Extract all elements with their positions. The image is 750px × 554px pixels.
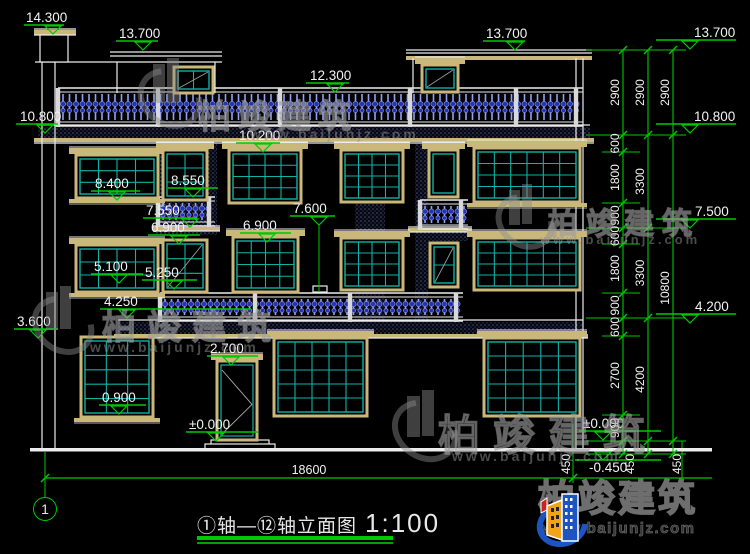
baluster-bulb bbox=[457, 101, 462, 106]
window-frame bbox=[484, 338, 580, 416]
baluster-bulb bbox=[221, 301, 226, 306]
baluster-stem bbox=[394, 94, 396, 120]
dim-value: 2900 bbox=[658, 79, 672, 106]
baluster bbox=[93, 94, 98, 120]
baluster bbox=[385, 94, 390, 120]
dim-chain: 2900330033004200 bbox=[633, 46, 652, 458]
baluster-stem bbox=[101, 94, 103, 120]
baluster-bulb bbox=[187, 213, 191, 217]
baluster bbox=[548, 94, 553, 120]
level-text: 13.700 bbox=[486, 26, 527, 41]
baluster-stem bbox=[264, 94, 266, 120]
baluster-bulb bbox=[463, 101, 468, 106]
dim-value: 1800 bbox=[608, 255, 622, 282]
baluster-bulb bbox=[138, 101, 143, 106]
baluster-bulb bbox=[169, 301, 174, 306]
baluster-bulb bbox=[470, 101, 475, 106]
baluster bbox=[292, 299, 297, 315]
baluster bbox=[266, 299, 271, 315]
balustrade-post bbox=[514, 88, 518, 127]
level-marker: 10.800 bbox=[656, 109, 736, 133]
level-text: 12.300 bbox=[310, 68, 351, 83]
baluster-bulb bbox=[106, 108, 110, 112]
baluster-bulb bbox=[364, 301, 369, 306]
level-marker: 7.600 bbox=[290, 201, 335, 225]
baluster bbox=[457, 94, 462, 120]
baluster bbox=[340, 94, 345, 120]
baluster-bulb bbox=[162, 301, 167, 306]
baluster bbox=[138, 94, 143, 120]
baluster-bulb bbox=[340, 108, 344, 112]
window bbox=[467, 140, 587, 208]
baluster-bulb bbox=[292, 301, 297, 306]
baluster-bulb bbox=[126, 108, 130, 112]
level-triangle bbox=[682, 41, 698, 49]
baluster bbox=[435, 299, 440, 315]
baluster bbox=[301, 94, 306, 120]
level-text: 7.550 bbox=[146, 203, 180, 218]
baluster bbox=[429, 299, 434, 315]
baluster-stem bbox=[381, 94, 383, 120]
baluster-bulb bbox=[338, 308, 342, 312]
baluster-bulb bbox=[223, 101, 228, 106]
baluster-bulb bbox=[554, 101, 559, 106]
baluster-bulb bbox=[249, 101, 254, 106]
baluster-stem bbox=[361, 94, 363, 120]
baluster-bulb bbox=[210, 101, 215, 106]
level-text: ±0.000 bbox=[189, 417, 230, 432]
baluster-bulb bbox=[528, 101, 533, 106]
baluster-bulb bbox=[386, 108, 390, 112]
baluster bbox=[86, 94, 91, 120]
baluster-bulb bbox=[436, 308, 440, 312]
baluster bbox=[333, 94, 338, 120]
baluster-stem bbox=[186, 94, 188, 120]
baluster-bulb bbox=[223, 108, 227, 112]
baluster bbox=[164, 94, 169, 120]
baluster-bulb bbox=[242, 101, 247, 106]
baluster bbox=[379, 94, 384, 120]
baluster-stem bbox=[329, 94, 331, 120]
baluster-bulb bbox=[364, 308, 368, 312]
baluster-bulb bbox=[186, 206, 191, 211]
baluster-stem bbox=[179, 94, 181, 120]
baluster-bulb bbox=[496, 101, 501, 106]
baluster bbox=[327, 94, 332, 120]
baluster bbox=[236, 94, 241, 120]
baluster-bulb bbox=[180, 213, 184, 217]
baluster-bulb bbox=[177, 101, 182, 106]
baluster-bulb bbox=[178, 108, 182, 112]
baluster-stem bbox=[511, 94, 513, 120]
baluster bbox=[67, 94, 72, 120]
baluster-bulb bbox=[306, 308, 310, 312]
baluster-bulb bbox=[262, 108, 266, 112]
baluster-bulb bbox=[353, 108, 357, 112]
baluster bbox=[80, 94, 85, 120]
baluster-stem bbox=[303, 94, 305, 120]
baluster bbox=[234, 299, 239, 315]
brand-logo: 柏竣建筑 www.baijunjz.com bbox=[532, 480, 698, 537]
baluster-bulb bbox=[280, 308, 284, 312]
baluster-bulb bbox=[119, 108, 123, 112]
baluster-stem bbox=[153, 94, 155, 120]
baluster bbox=[145, 94, 150, 120]
baluster-stem bbox=[218, 94, 220, 120]
level-text: 13.700 bbox=[694, 25, 735, 40]
axis-bubble-1: 1 bbox=[33, 497, 57, 521]
baluster-bulb bbox=[403, 308, 407, 312]
baluster bbox=[535, 94, 540, 120]
baluster-bulb bbox=[80, 101, 85, 106]
baluster-bulb bbox=[165, 108, 169, 112]
window bbox=[422, 142, 465, 197]
baluster-bulb bbox=[437, 101, 442, 106]
ground-line bbox=[30, 448, 712, 452]
baluster-stem bbox=[335, 94, 337, 120]
baluster-bulb bbox=[418, 108, 422, 112]
baluster-bulb bbox=[409, 301, 414, 306]
baluster-bulb bbox=[423, 308, 427, 312]
baluster-bulb bbox=[299, 308, 303, 312]
baluster bbox=[429, 206, 434, 223]
level-text: 5.250 bbox=[145, 265, 179, 280]
baluster-bulb bbox=[293, 308, 297, 312]
baluster-bulb bbox=[338, 301, 343, 306]
baluster bbox=[346, 94, 351, 120]
baluster-bulb bbox=[509, 108, 513, 112]
stipple-band bbox=[38, 127, 590, 138]
baluster-bulb bbox=[548, 101, 553, 106]
baluster-bulb bbox=[327, 108, 331, 112]
baluster bbox=[359, 94, 364, 120]
baluster bbox=[502, 94, 507, 120]
baluster-bulb bbox=[444, 101, 449, 106]
balustrade bbox=[418, 200, 468, 230]
baluster-bulb bbox=[555, 108, 559, 112]
baluster-bulb bbox=[164, 101, 169, 106]
baluster-stem bbox=[127, 94, 129, 120]
dim-value: 450 bbox=[623, 454, 637, 474]
level-text: 13.700 bbox=[119, 26, 160, 41]
baluster-bulb bbox=[567, 101, 572, 106]
baluster bbox=[169, 299, 174, 315]
baluster-bulb bbox=[503, 108, 507, 112]
dim-value: 600 bbox=[608, 133, 622, 153]
baluster-stem bbox=[504, 94, 506, 120]
window-cornice bbox=[267, 331, 374, 337]
window-sill bbox=[74, 418, 160, 422]
baluster-stem bbox=[199, 94, 201, 120]
baluster-bulb bbox=[320, 101, 325, 106]
baluster-bulb bbox=[476, 101, 481, 106]
baluster-stem bbox=[450, 206, 452, 223]
baluster bbox=[182, 299, 187, 315]
baluster-stem bbox=[463, 206, 465, 223]
baluster-bulb bbox=[390, 301, 395, 306]
baluster-bulb bbox=[288, 108, 292, 112]
baluster-bulb bbox=[61, 108, 65, 112]
dim-chain: 2900600180090060018009006002700900 bbox=[608, 46, 627, 458]
level-text: 4.200 bbox=[695, 299, 729, 314]
baluster-bulb bbox=[286, 301, 291, 306]
baluster bbox=[112, 94, 117, 120]
level-marker: -0.450 bbox=[575, 452, 661, 475]
baluster-stem bbox=[348, 94, 350, 120]
baluster-bulb bbox=[305, 301, 310, 306]
baluster-bulb bbox=[403, 301, 408, 306]
baluster-stem bbox=[368, 94, 370, 120]
balustrade bbox=[56, 88, 583, 127]
level-triangle bbox=[30, 330, 46, 338]
baluster-bulb bbox=[561, 108, 565, 112]
dim-value: 900 bbox=[608, 418, 622, 438]
baluster bbox=[320, 94, 325, 120]
baluster-bulb bbox=[398, 101, 403, 106]
title-text: ①轴—⑫轴立面图 bbox=[197, 516, 357, 537]
baluster bbox=[424, 94, 429, 120]
level-marker: 13.700 bbox=[656, 25, 736, 49]
baluster-bulb bbox=[359, 101, 364, 106]
dim-value: 900 bbox=[608, 205, 622, 225]
baluster-bulb bbox=[366, 101, 371, 106]
baluster-bulb bbox=[273, 308, 277, 312]
baluster-bulb bbox=[100, 108, 104, 112]
window-cornice bbox=[415, 58, 465, 64]
baluster-bulb bbox=[371, 308, 375, 312]
level-text: 6.900 bbox=[151, 220, 185, 235]
baluster-stem bbox=[400, 94, 402, 120]
baluster-bulb bbox=[294, 101, 299, 106]
level-triangle bbox=[682, 220, 698, 228]
cad-elevation-screenshot: 14.30013.70012.30013.70013.70010.80010.8… bbox=[0, 0, 750, 554]
window bbox=[467, 230, 587, 290]
baluster-stem bbox=[478, 94, 480, 120]
baluster-bulb bbox=[385, 101, 390, 106]
baluster-stem bbox=[251, 94, 253, 120]
baluster-bulb bbox=[314, 101, 319, 106]
baluster-bulb bbox=[267, 308, 271, 312]
dim-value: 2700 bbox=[608, 362, 622, 389]
baluster bbox=[442, 206, 447, 223]
balustrade-post bbox=[278, 88, 282, 127]
baluster-bulb bbox=[255, 101, 260, 106]
balustrade-post bbox=[454, 293, 458, 322]
baluster bbox=[366, 94, 371, 120]
baluster-bulb bbox=[489, 101, 494, 106]
baluster-bulb bbox=[331, 301, 336, 306]
baluster-bulb bbox=[286, 308, 290, 312]
baluster bbox=[132, 94, 137, 120]
baluster bbox=[431, 94, 436, 120]
baluster-bulb bbox=[208, 301, 213, 306]
baluster bbox=[201, 299, 206, 315]
baluster-stem bbox=[413, 94, 415, 120]
baluster bbox=[262, 94, 267, 120]
baluster-stem bbox=[569, 94, 571, 120]
baluster-bulb bbox=[139, 108, 143, 112]
baluster-bulb bbox=[112, 101, 117, 106]
baluster-bulb bbox=[561, 101, 566, 106]
baluster-bulb bbox=[312, 301, 317, 306]
baluster-bulb bbox=[227, 301, 232, 306]
baluster bbox=[437, 94, 442, 120]
baluster-bulb bbox=[319, 308, 323, 312]
baluster-bulb bbox=[548, 108, 552, 112]
level-text: 5.100 bbox=[94, 259, 128, 274]
baluster-bulb bbox=[450, 101, 455, 106]
window bbox=[334, 142, 410, 202]
baluster-bulb bbox=[318, 301, 323, 306]
baluster bbox=[541, 94, 546, 120]
baluster-bulb bbox=[301, 101, 306, 106]
baluster-stem bbox=[431, 206, 433, 223]
baluster-bulb bbox=[522, 108, 526, 112]
baluster-bulb bbox=[535, 101, 540, 106]
baluster bbox=[390, 299, 395, 315]
baluster-bulb bbox=[93, 108, 97, 112]
baluster-bulb bbox=[240, 301, 245, 306]
baluster-bulb bbox=[332, 308, 336, 312]
baluster-bulb bbox=[195, 301, 200, 306]
baluster bbox=[119, 94, 124, 120]
baluster-bulb bbox=[197, 108, 201, 112]
baluster-bulb bbox=[229, 101, 234, 106]
baluster bbox=[195, 299, 200, 315]
baluster-stem bbox=[88, 94, 90, 120]
baluster-stem bbox=[387, 94, 389, 120]
baluster-bulb bbox=[429, 308, 433, 312]
baluster-bulb bbox=[273, 301, 278, 306]
baluster-bulb bbox=[197, 101, 202, 106]
baluster-bulb bbox=[217, 108, 221, 112]
baluster-stem bbox=[270, 94, 272, 120]
window bbox=[430, 243, 458, 287]
baluster-bulb bbox=[431, 101, 436, 106]
dim-value: 600 bbox=[608, 317, 622, 337]
baluster-bulb bbox=[307, 101, 312, 106]
baluster bbox=[398, 94, 403, 120]
baluster-bulb bbox=[184, 108, 188, 112]
baluster-bulb bbox=[312, 308, 316, 312]
baluster bbox=[125, 94, 130, 120]
window bbox=[334, 230, 410, 290]
baluster-stem bbox=[192, 94, 194, 120]
baluster bbox=[314, 94, 319, 120]
baluster-bulb bbox=[431, 108, 435, 112]
baluster-bulb bbox=[145, 101, 150, 106]
level-triangle bbox=[682, 125, 698, 133]
baluster-bulb bbox=[308, 108, 312, 112]
overall-width-value: 18600 bbox=[292, 463, 327, 477]
baluster-stem bbox=[257, 94, 259, 120]
baluster-bulb bbox=[483, 101, 488, 106]
baluster bbox=[242, 94, 247, 120]
baluster-bulb bbox=[470, 108, 474, 112]
baluster bbox=[299, 299, 304, 315]
baluster bbox=[353, 94, 358, 120]
baluster bbox=[392, 94, 397, 120]
baluster-stem bbox=[309, 94, 311, 120]
baluster-bulb bbox=[314, 108, 318, 112]
baluster-bulb bbox=[429, 216, 433, 220]
baluster-bulb bbox=[568, 108, 572, 112]
baluster bbox=[307, 94, 312, 120]
dim-value: 450 bbox=[559, 454, 573, 474]
level-marker: 7.500 bbox=[656, 204, 736, 228]
baluster-bulb bbox=[360, 108, 364, 112]
baluster bbox=[476, 94, 481, 120]
baluster bbox=[210, 94, 215, 120]
baluster-bulb bbox=[418, 101, 423, 106]
baluster-bulb bbox=[416, 308, 420, 312]
baluster bbox=[312, 299, 317, 315]
balustrade-post bbox=[408, 88, 412, 127]
baluster-bulb bbox=[247, 301, 252, 306]
baluster-bulb bbox=[256, 108, 260, 112]
baluster bbox=[197, 94, 202, 120]
level-text: 4.250 bbox=[104, 294, 138, 309]
baluster-bulb bbox=[199, 206, 204, 211]
elevation-drawing: 14.30013.70012.30013.70013.70010.80010.8… bbox=[0, 0, 750, 554]
baluster bbox=[528, 94, 533, 120]
baluster-bulb bbox=[346, 101, 351, 106]
baluster-bulb bbox=[529, 108, 533, 112]
baluster-stem bbox=[212, 94, 214, 120]
baluster-stem bbox=[322, 94, 324, 120]
baluster bbox=[227, 299, 232, 315]
baluster bbox=[442, 299, 447, 315]
baluster-bulb bbox=[180, 206, 185, 211]
outline-rect bbox=[40, 35, 68, 62]
baluster bbox=[288, 94, 293, 120]
window-cornice bbox=[467, 231, 587, 237]
window-cornice bbox=[467, 141, 587, 147]
baluster bbox=[240, 299, 245, 315]
baluster-bulb bbox=[448, 301, 453, 306]
baluster-bulb bbox=[397, 308, 401, 312]
baluster bbox=[214, 299, 219, 315]
baluster bbox=[247, 299, 252, 315]
baluster-bulb bbox=[379, 108, 383, 112]
baluster-bulb bbox=[442, 209, 447, 214]
baluster-bulb bbox=[86, 101, 91, 106]
baluster-bulb bbox=[60, 101, 65, 106]
baluster-bulb bbox=[188, 301, 193, 306]
balustrade-post bbox=[459, 200, 463, 230]
baluster-bulb bbox=[390, 308, 394, 312]
title-underline-2 bbox=[197, 542, 393, 544]
baluster-bulb bbox=[412, 108, 416, 112]
baluster-stem bbox=[134, 94, 136, 120]
level-marker: 13.700 bbox=[116, 26, 160, 50]
title-underline bbox=[197, 536, 393, 540]
baluster-stem bbox=[459, 94, 461, 120]
window-frame bbox=[274, 338, 367, 416]
level-text: 3.600 bbox=[17, 314, 51, 329]
baluster bbox=[203, 94, 208, 120]
baluster-stem bbox=[491, 94, 493, 120]
baluster-bulb bbox=[451, 108, 455, 112]
baluster-bulb bbox=[509, 101, 514, 106]
dim-chain: 290010800 bbox=[658, 46, 677, 458]
baluster-bulb bbox=[449, 308, 453, 312]
level-triangle bbox=[311, 217, 327, 225]
baluster-stem bbox=[426, 94, 428, 120]
baluster-stem bbox=[173, 94, 175, 120]
baluster-bulb bbox=[438, 108, 442, 112]
baluster bbox=[249, 94, 254, 120]
